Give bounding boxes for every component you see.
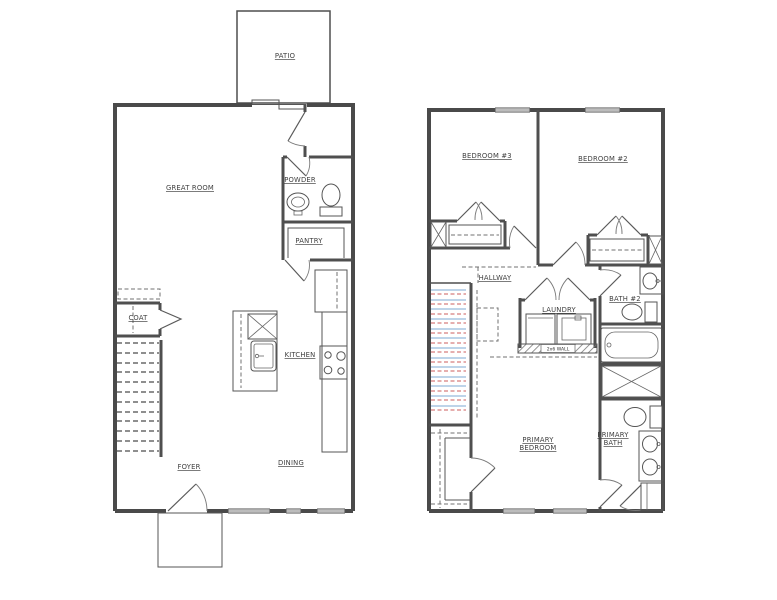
- refrigerator-symbol: [315, 270, 347, 312]
- bedroom2-label: BEDROOM #2: [578, 155, 628, 163]
- primary-sink-symbol: [643, 459, 658, 475]
- powder-sink-symbol: [287, 193, 309, 211]
- powder-toilet-symbol: [322, 184, 340, 206]
- floor-plan-sheet: PATIO GREAT ROOM POWDER PANTRY KITCHEN C…: [0, 0, 777, 600]
- stoop-outline: [158, 513, 222, 567]
- first-floor-plan: PATIO GREAT ROOM POWDER PANTRY KITCHEN C…: [115, 11, 353, 567]
- powder-label: POWDER: [284, 176, 316, 184]
- kitchen-island: [233, 311, 277, 391]
- primary-sink-symbol: [643, 436, 658, 452]
- bedroom2-closet-shelf: [590, 239, 644, 261]
- second-floor-plan: 2x6 WALL: [429, 108, 663, 513]
- laundry-doors: [525, 278, 590, 300]
- primary-closet-door: [471, 468, 495, 492]
- bath2-fixtures: [601, 267, 663, 362]
- foyer-label: FOYER: [177, 463, 200, 471]
- primary-bedroom-label-line2: BEDROOM: [520, 444, 557, 452]
- overhead-dashed-outline: [118, 289, 160, 299]
- kitchen-fixtures: [233, 270, 347, 452]
- primary-closet-shelf: [445, 438, 471, 500]
- washer-symbol: [526, 314, 555, 344]
- coat-label: COAT: [128, 314, 148, 322]
- bath2-label: BATH #2: [609, 295, 641, 303]
- dining-label: DINING: [278, 459, 304, 467]
- bedroom2-door: [553, 242, 576, 265]
- bedroom3-label: BEDROOM #3: [462, 152, 512, 160]
- bath2-door: [600, 275, 621, 296]
- laundry-fixtures: 2x6 WALL: [518, 314, 597, 353]
- first-floor-exterior-walls: [115, 103, 353, 511]
- primary-bath-fixtures: [624, 406, 663, 481]
- second-floor-stairs: [431, 290, 466, 410]
- kitchen-counter: [322, 312, 347, 452]
- primary-bath-label-line1: PRIMARY: [597, 431, 629, 439]
- great-room-label: GREAT ROOM: [166, 184, 214, 192]
- patio-entry-door: [288, 112, 305, 141]
- primary-bath-label-line2: BATH: [604, 439, 623, 447]
- stair-treads-red: [431, 294, 466, 410]
- coat-closet-door: [160, 310, 181, 329]
- floor-plan-drawing: PATIO GREAT ROOM POWDER PANTRY KITCHEN C…: [0, 0, 777, 600]
- front-door: [168, 484, 196, 511]
- pantry-door: [285, 260, 304, 281]
- first-floor-windows: [228, 509, 345, 513]
- powder-fixtures: [287, 184, 342, 216]
- primary-bedroom-label-line1: PRIMARY: [522, 436, 554, 444]
- 2x6-wall-note: 2x6 WALL: [547, 347, 570, 353]
- linen-closet-door: [620, 485, 641, 506]
- stair-treads-blue: [431, 290, 466, 406]
- pantry-label: PANTRY: [295, 237, 323, 245]
- patio-slider-door: [252, 100, 306, 109]
- linen-closet: [641, 483, 663, 510]
- bedroom2-closet-doors: [597, 216, 641, 235]
- bath2-sink-symbol: [643, 273, 657, 289]
- hallway-label: HALLWAY: [479, 274, 512, 282]
- primary-toilet-symbol: [624, 408, 646, 427]
- bedroom3-door: [514, 226, 536, 248]
- bath2-toilet-symbol: [622, 304, 642, 320]
- laundry-label: LAUNDRY: [542, 306, 576, 314]
- first-floor-interior-walls: [115, 105, 353, 457]
- powder-door: [287, 157, 306, 176]
- primary-bath-door: [600, 485, 622, 507]
- patio-label: PATIO: [275, 52, 295, 60]
- first-floor-stairs-treads: [117, 343, 159, 451]
- kitchen-label: KITCHEN: [285, 351, 316, 359]
- attic-access-dashed: [477, 308, 498, 341]
